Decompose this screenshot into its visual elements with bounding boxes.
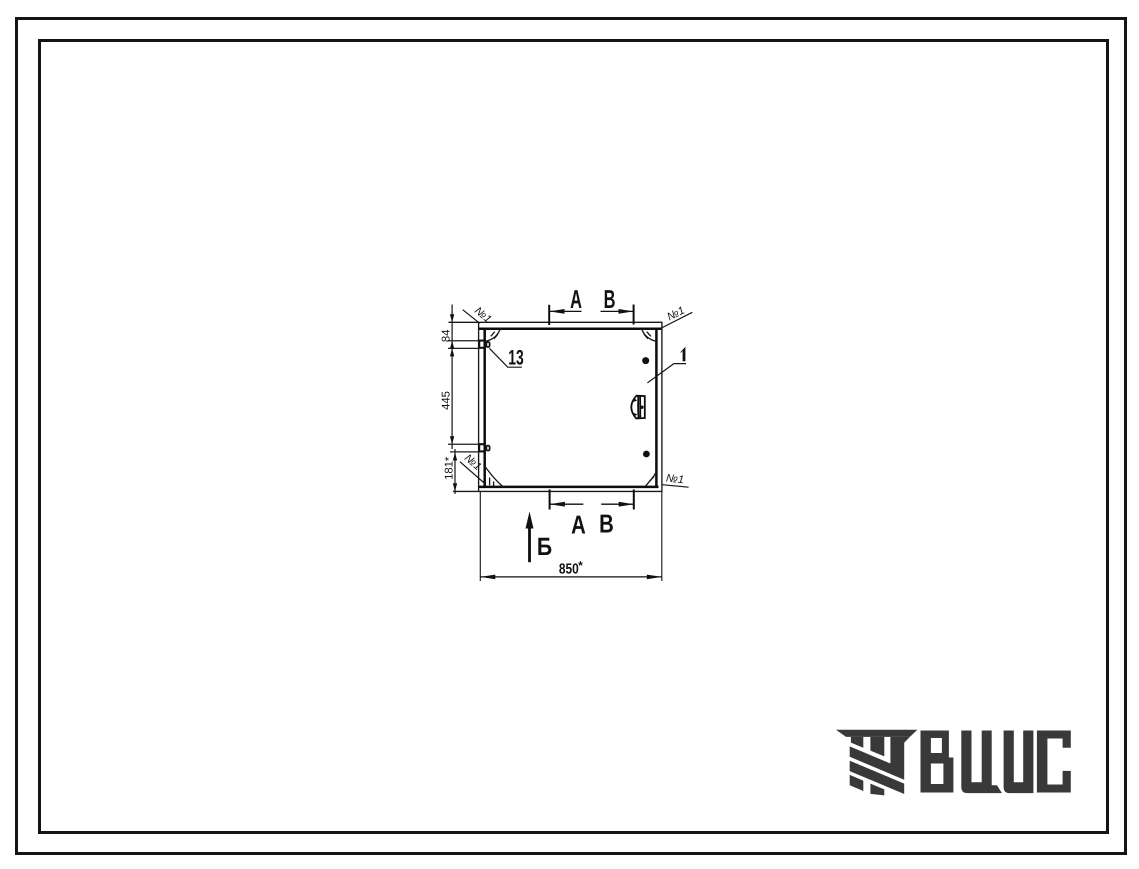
svg-text:445: 445: [440, 391, 452, 410]
svg-text:*: *: [578, 558, 583, 572]
svg-text:A: A: [570, 284, 582, 314]
svg-text:№1: №1: [665, 472, 684, 486]
svg-text:Б: Б: [537, 533, 552, 561]
svg-text:A: A: [571, 510, 586, 540]
svg-text:B: B: [599, 509, 614, 539]
svg-text:№1: №1: [665, 305, 686, 324]
svg-text:84: 84: [440, 330, 452, 343]
svg-text:13: 13: [508, 347, 523, 370]
svg-text:B: B: [604, 284, 616, 314]
svg-text:№1: №1: [462, 452, 483, 473]
svg-text:181*: 181*: [443, 456, 455, 480]
svg-text:850: 850: [559, 562, 579, 578]
